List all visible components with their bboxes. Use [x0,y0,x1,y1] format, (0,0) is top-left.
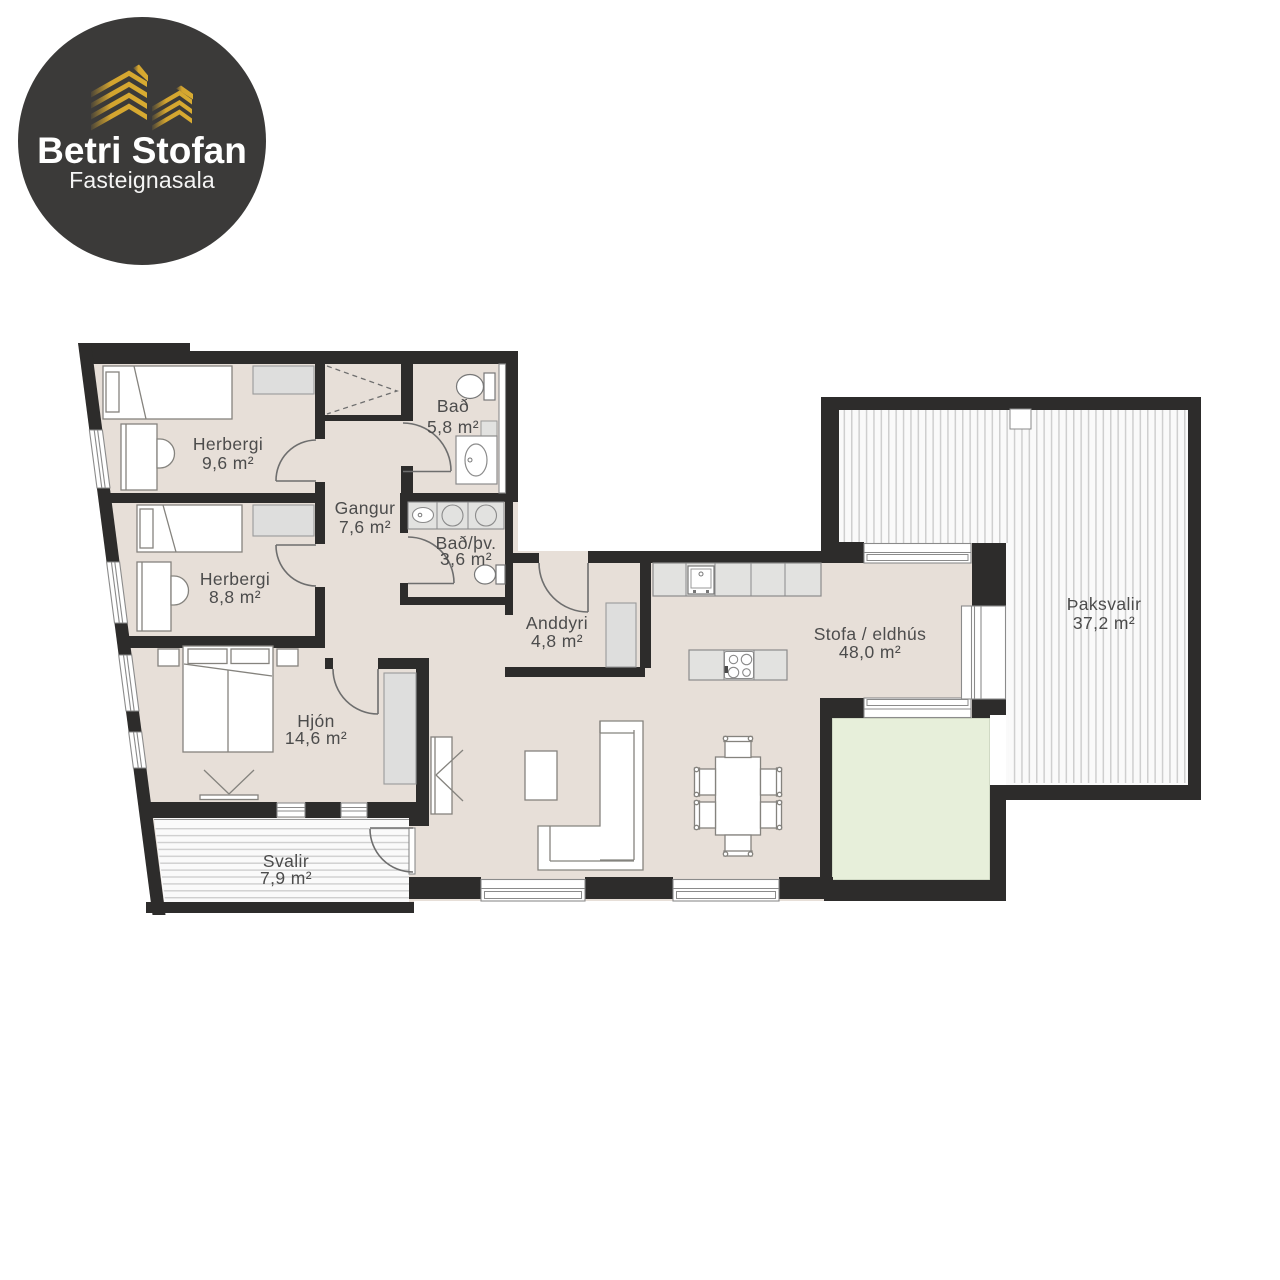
svg-text:7,6 m²: 7,6 m² [339,517,391,537]
svg-text:14,6 m²: 14,6 m² [285,728,347,748]
svg-text:Gangur: Gangur [335,498,396,518]
svg-text:Stofa / eldhús: Stofa / eldhús [814,624,927,644]
svg-text:Bað: Bað [437,396,469,416]
svg-text:Betri Stofan: Betri Stofan [37,130,247,171]
svg-text:Herbergi: Herbergi [193,434,263,454]
svg-text:3,6 m²: 3,6 m² [440,549,492,569]
svg-text:Fasteignasala: Fasteignasala [69,167,215,193]
svg-text:Þaksvalir: Þaksvalir [1067,594,1142,614]
svg-text:Herbergi: Herbergi [200,569,270,589]
svg-text:7,9 m²: 7,9 m² [260,868,312,888]
svg-text:37,2 m²: 37,2 m² [1073,613,1135,633]
svg-text:9,6 m²: 9,6 m² [202,453,254,473]
svg-text:48,0 m²: 48,0 m² [839,642,901,662]
svg-text:Anddyri: Anddyri [526,613,588,633]
svg-text:8,8 m²: 8,8 m² [209,587,261,607]
svg-text:4,8 m²: 4,8 m² [531,631,583,651]
svg-text:5,8 m²: 5,8 m² [427,417,479,437]
